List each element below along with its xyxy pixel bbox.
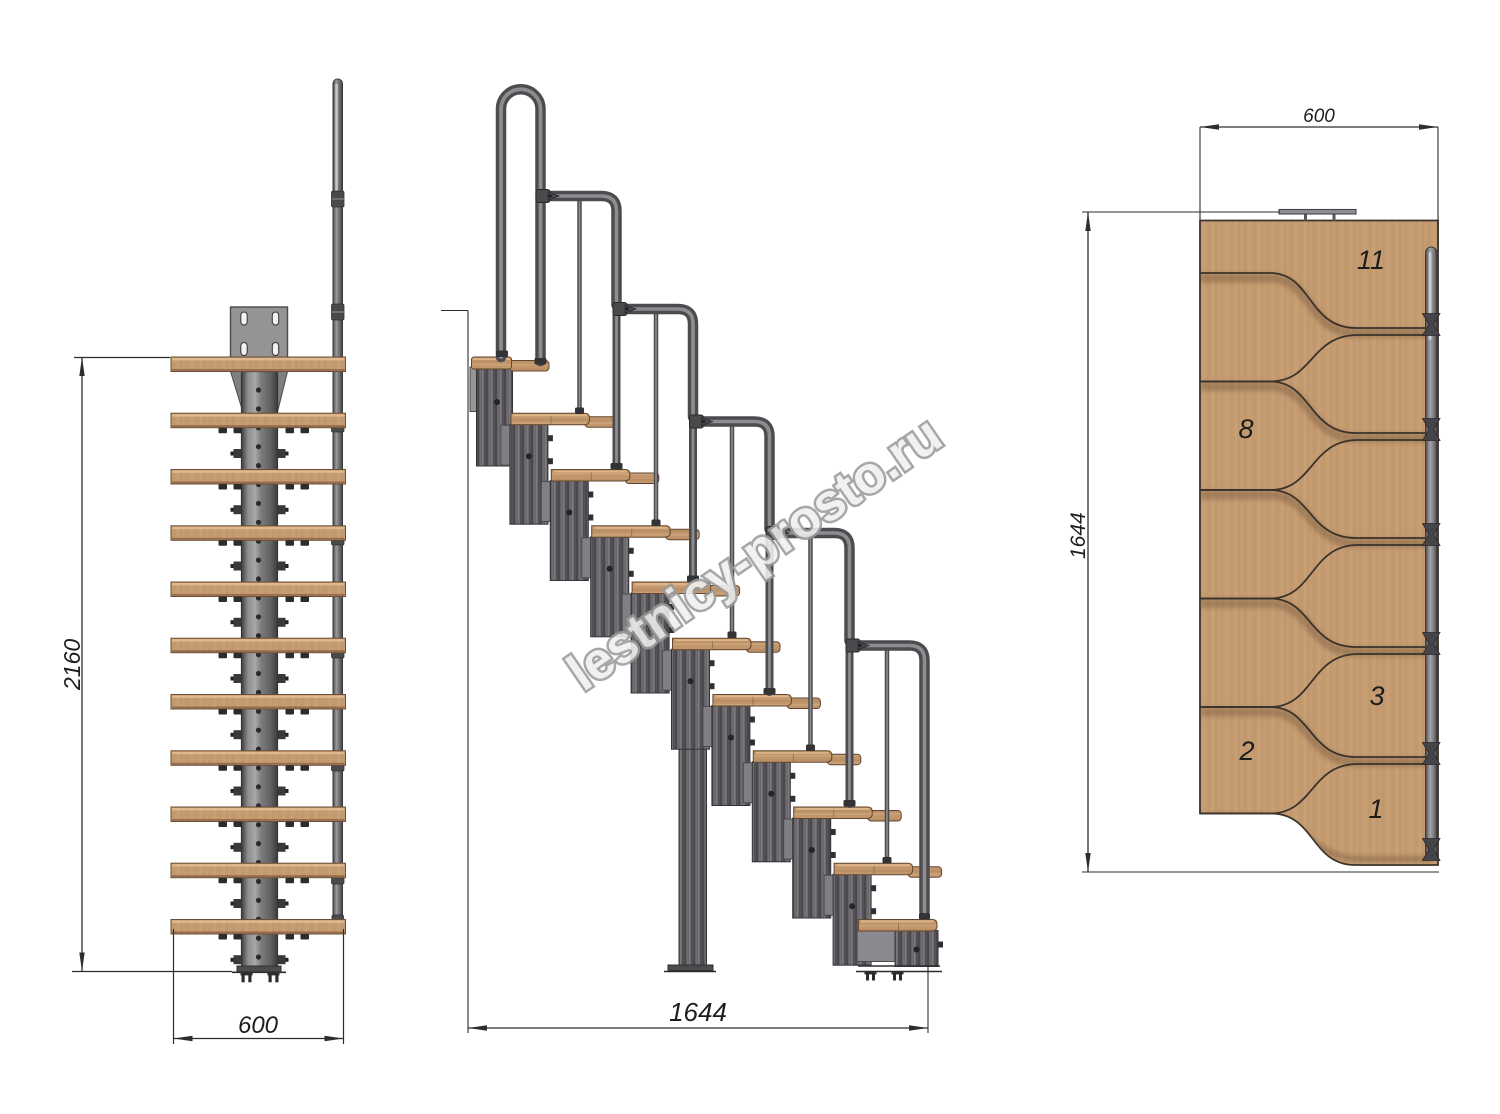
svg-text:3: 3 [1369, 681, 1384, 711]
svg-text:2160: 2160 [59, 639, 85, 691]
svg-text:1644: 1644 [1067, 512, 1090, 559]
svg-text:11: 11 [1357, 245, 1385, 275]
svg-text:8: 8 [1238, 414, 1253, 444]
svg-text:1: 1 [1368, 794, 1383, 824]
svg-text:600: 600 [238, 1012, 279, 1039]
svg-text:2: 2 [1238, 736, 1254, 766]
svg-text:600: 600 [1303, 106, 1335, 127]
svg-text:1644: 1644 [669, 997, 727, 1027]
